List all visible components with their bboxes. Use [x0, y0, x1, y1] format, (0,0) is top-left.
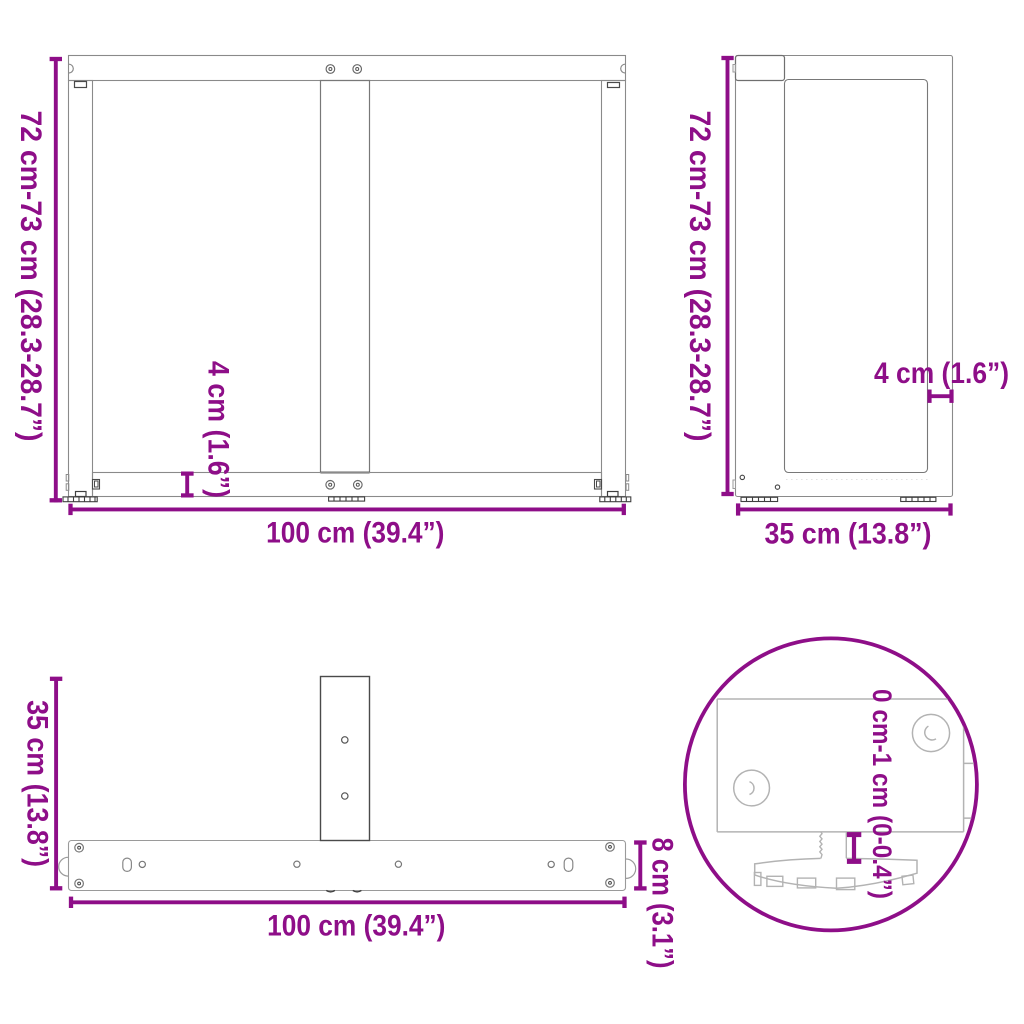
svg-text:4 cm (1.6”): 4 cm (1.6”): [874, 357, 1009, 390]
svg-text:8 cm (3.1”): 8 cm (3.1”): [646, 838, 679, 969]
svg-text:100 cm (39.4”): 100 cm (39.4”): [267, 909, 445, 942]
svg-text:72 cm-73 cm (28.3-28.7”): 72 cm-73 cm (28.3-28.7”): [683, 111, 716, 442]
svg-text:0 cm-1 cm (0-0.4”): 0 cm-1 cm (0-0.4”): [867, 689, 897, 899]
svg-text:100 cm (39.4”): 100 cm (39.4”): [266, 516, 444, 549]
svg-text:35 cm (13.8”): 35 cm (13.8”): [765, 517, 932, 550]
svg-text:35 cm (13.8”): 35 cm (13.8”): [21, 700, 54, 867]
svg-text:72 cm-73 cm (28.3-28.7”): 72 cm-73 cm (28.3-28.7”): [14, 111, 47, 442]
svg-text:4 cm (1.6”): 4 cm (1.6”): [201, 361, 234, 498]
